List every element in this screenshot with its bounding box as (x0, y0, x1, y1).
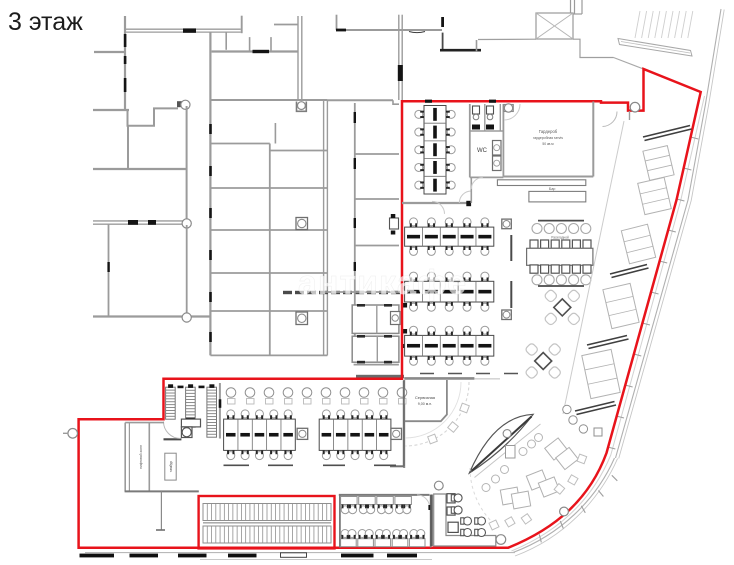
svg-text:9,00 м.п.: 9,00 м.п. (418, 402, 432, 406)
svg-text:антикафе: антикафе (298, 264, 467, 302)
svg-text:Раскладной: Раскладной (551, 236, 569, 240)
svg-text:гардеробная servis: гардеробная servis (533, 136, 563, 140)
svg-text:Сервизная: Сервизная (415, 395, 435, 400)
svg-text:тамбур: тамбур (169, 461, 173, 472)
svg-text:3 этаж: 3 этаж (8, 8, 83, 36)
svg-text:50 кв.м: 50 кв.м (542, 142, 554, 146)
svg-text:WC: WC (477, 148, 488, 154)
svg-text:лифтовой холл: лифтовой холл (139, 445, 143, 469)
svg-text:Бар: Бар (549, 187, 555, 191)
svg-text:Гардероб: Гардероб (539, 129, 558, 134)
